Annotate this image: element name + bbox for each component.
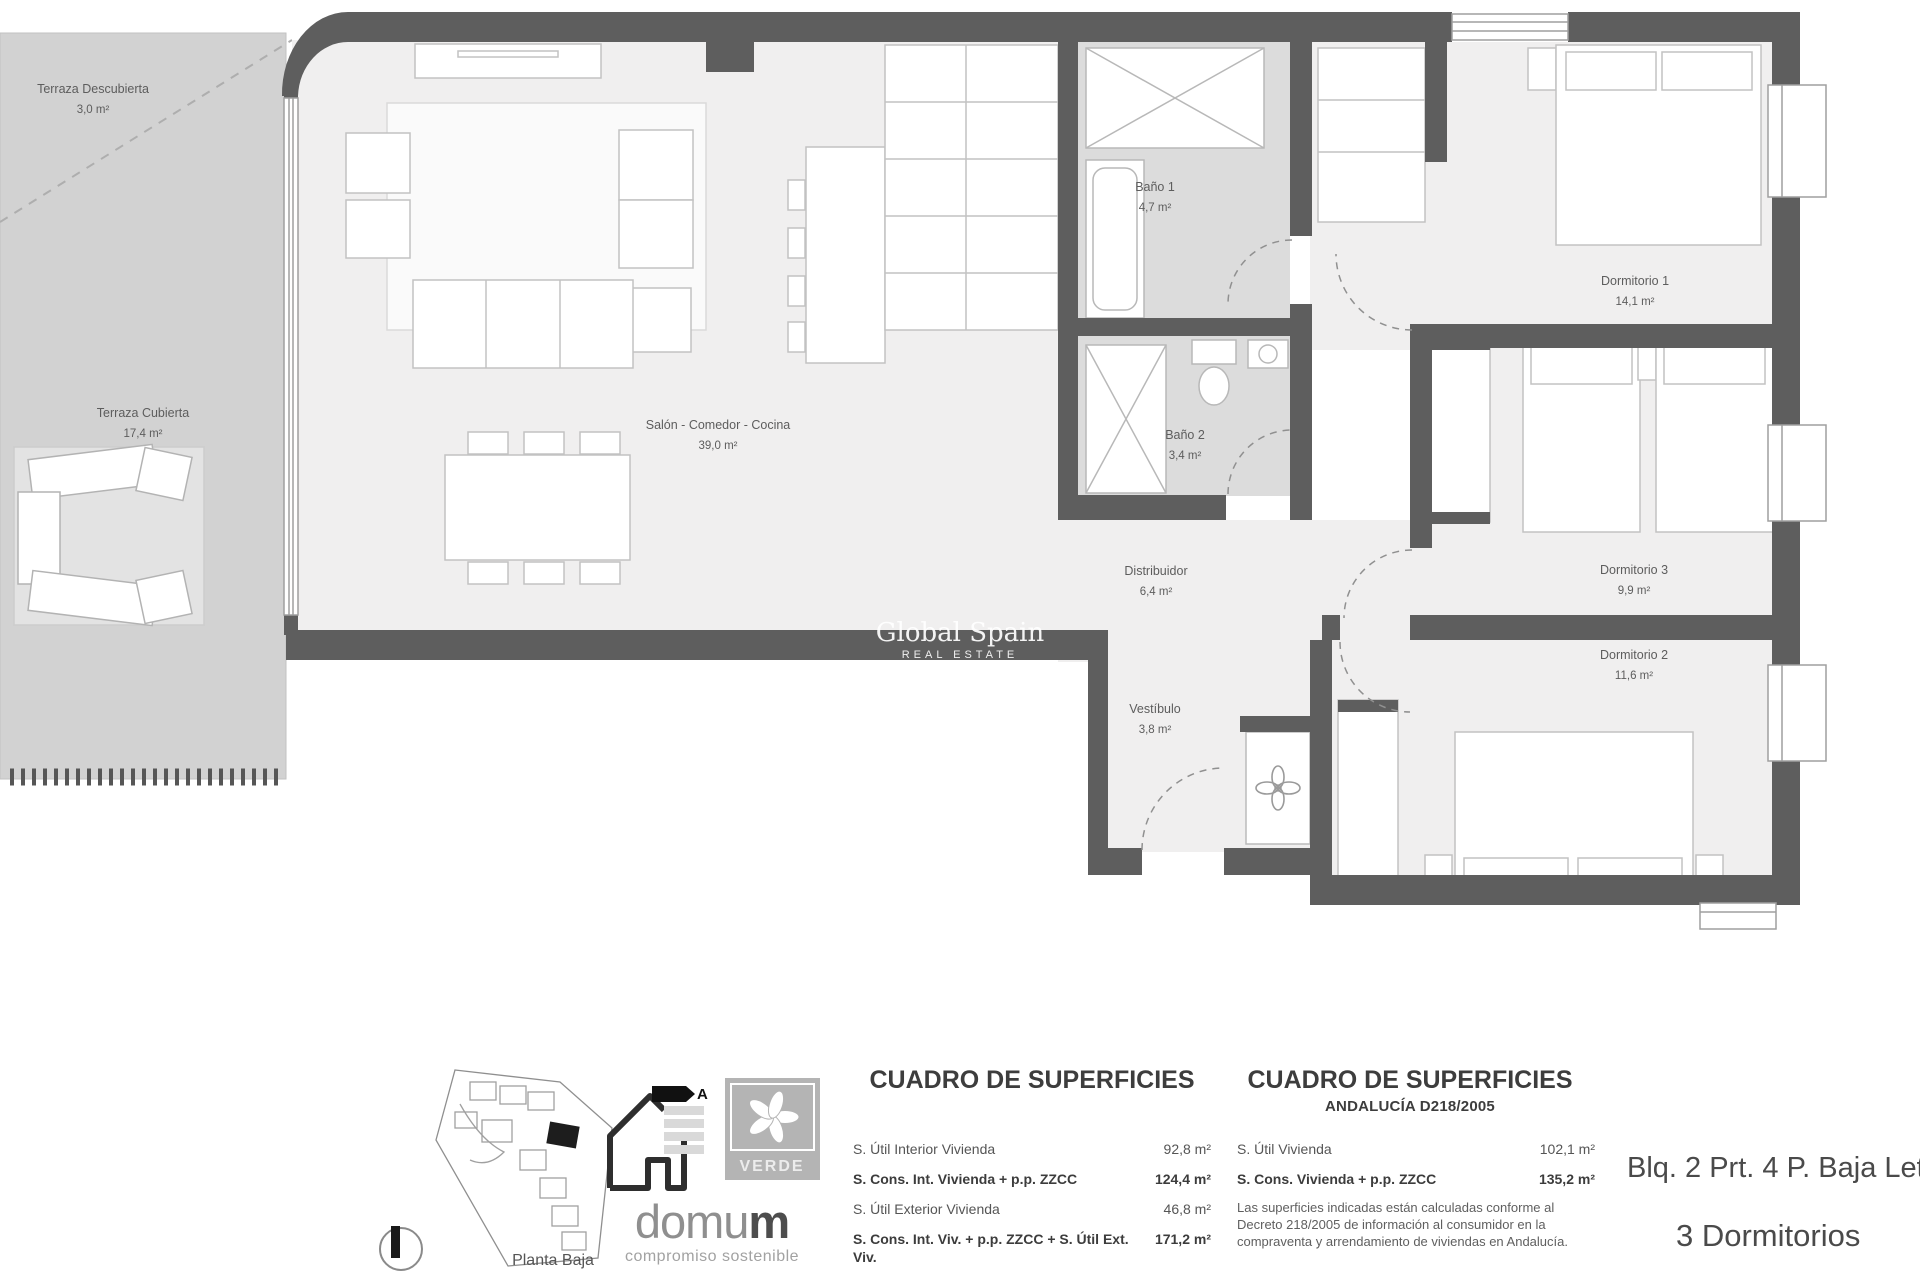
brand-logo: domum compromiso sostenible [625,1198,799,1266]
room-label-distribuidor: Distribuidor 6,4 m² [1124,564,1187,598]
table-andalucia-subtitle: ANDALUCÍA D218/2005 [1247,1098,1572,1115]
watermark-subtitle: REAL ESTATE [876,649,1044,661]
table-andalucia-note: Las superficies indicadas están calculad… [1237,1200,1587,1251]
room-label-dormitorio1: Dormitorio 1 14,1 m² [1601,274,1669,308]
floor-plan-page: Terraza Descubierta 3,0 m² Terraza Cubie… [0,0,1920,1280]
room-label-terraza-cubierta: Terraza Cubierta 17,4 m² [97,406,189,440]
room-label-bano1: Baño 1 4,7 m² [1135,180,1175,214]
table-andalucia: S. Útil Vivienda 102,1 m² S. Cons. Vivie… [1237,1140,1595,1251]
unit-type: 3 Dormitorios [1676,1218,1860,1254]
room-label-terraza-descubierta: Terraza Descubierta 3,0 m² [37,82,149,116]
terrace-sofa [14,444,204,625]
compass-icon [380,1226,422,1270]
unit-reference: Blq. 2 Prt. 4 P. Baja Letra A [1627,1152,1920,1185]
table-row: S. Útil Interior Vivienda 92,8 m² [853,1140,1211,1158]
table-row: S. Cons. Int. Vivienda + p.p. ZZCC 124,4… [853,1170,1211,1188]
verde-logo-label: VERDE [739,1158,804,1176]
table-general: S. Útil Interior Vivienda 92,8 m² S. Con… [853,1140,1211,1278]
room-label-dormitorio3: Dormitorio 3 9,9 m² [1600,563,1668,597]
brand-tagline: compromiso sostenible [625,1248,799,1266]
watermark-title: Global Spain [876,618,1044,648]
table-row: S. Cons. Vivienda + p.p. ZZCC 135,2 m² [1237,1170,1595,1188]
site-plan-label: Planta Baja [512,1252,594,1270]
room-label-salon: Salón - Comedor - Cocina 39,0 m² [646,418,791,452]
energy-scale-bars [664,1106,704,1154]
table-row: S. Útil Exterior Vivienda 46,8 m² [853,1200,1211,1218]
energy-rating-icon [610,1086,704,1188]
energy-rating-letter: A [697,1086,708,1103]
table-general-title: CUADRO DE SUPERFICIES [869,1066,1194,1095]
table-row: S. Útil Vivienda 102,1 m² [1237,1140,1595,1158]
site-plan [436,1070,612,1266]
table-row: S. Cons. Int. Viv. + p.p. ZZCC + S. Útil… [853,1230,1211,1266]
room-label-vestibulo: Vestíbulo 3,8 m² [1129,702,1180,736]
brand-wordmark: domum [625,1198,799,1245]
watermark: Global Spain REAL ESTATE [876,618,1044,661]
room-label-dormitorio2: Dormitorio 2 11,6 m² [1600,648,1668,682]
room-label-bano2: Baño 2 3,4 m² [1165,428,1205,462]
table-andalucia-title: CUADRO DE SUPERFICIES ANDALUCÍA D218/200… [1247,1066,1572,1115]
